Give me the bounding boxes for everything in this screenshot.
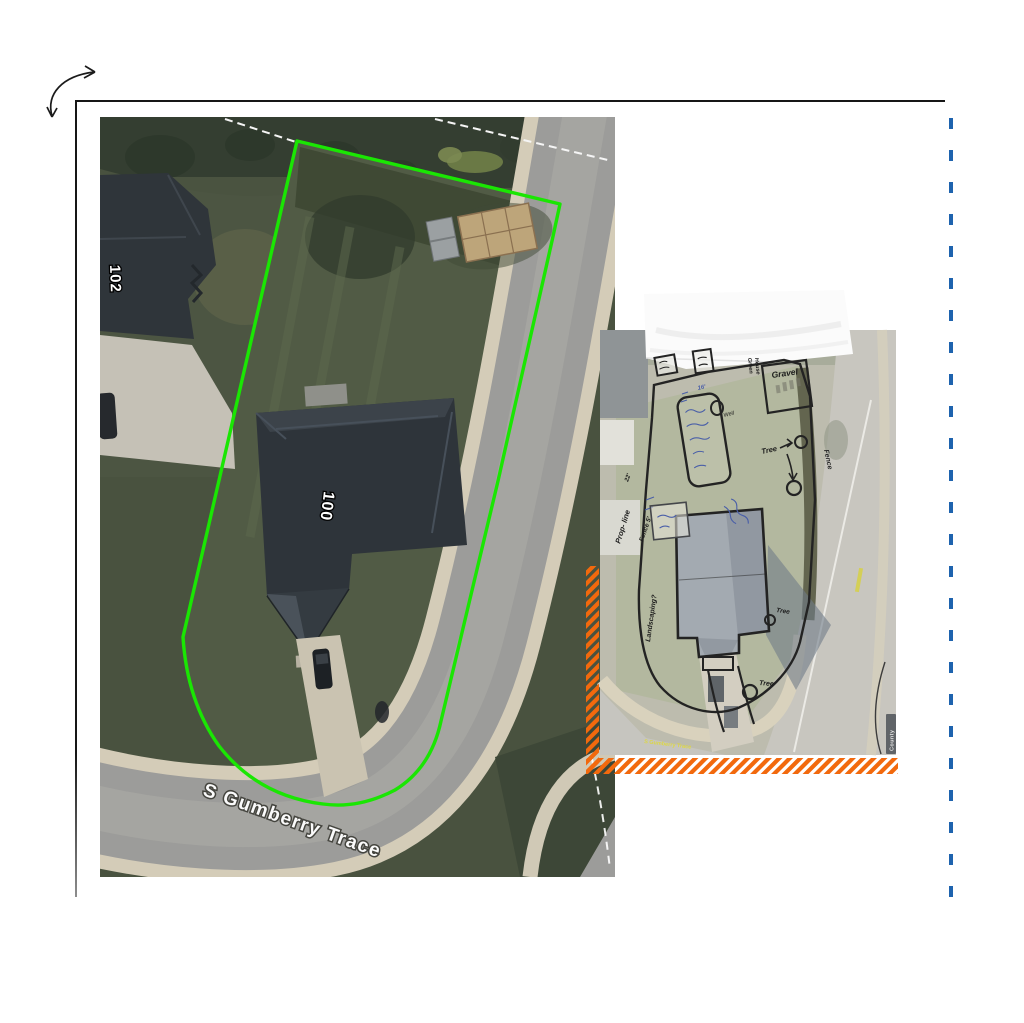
rotate-arrow-icon [22,58,107,128]
county-badge-text: County [890,729,896,751]
page-break-divider [946,115,956,905]
tree-label-bottom: Tree [759,680,774,688]
aerial-map-image[interactable]: 102 100 S Gumberry Trace [100,117,615,877]
arrow-curve [51,72,94,116]
parcel-label-102: 102 [106,265,124,294]
county-watermark-badge: County [886,714,896,754]
site-sketch-image[interactable]: Gravel Green House Well Tree Fence Prop-… [586,290,900,782]
page-border-left [75,100,77,897]
parcel-label-100: 100 [316,491,336,523]
page-border-top [75,100,945,102]
arrow-head-start [47,107,57,117]
document-canvas: 102 100 S Gumberry Trace [0,0,1024,1023]
